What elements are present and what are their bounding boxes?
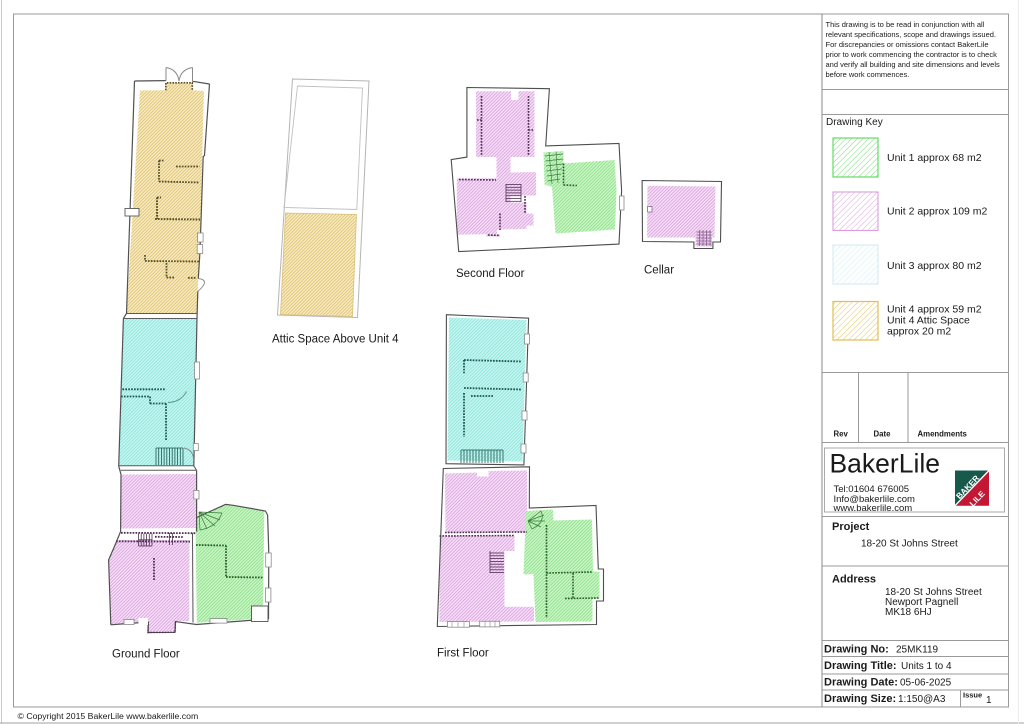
- svg-text:This drawing is to be read in: This drawing is to be read in conjunctio…: [826, 20, 985, 29]
- svg-text:Drawing No:: Drawing No:: [824, 644, 889, 656]
- svg-text:05-06-2025: 05-06-2025: [900, 678, 952, 689]
- svg-text:25MK119: 25MK119: [896, 645, 939, 656]
- svg-text:and verify all building and si: and verify all building and site dimensi…: [826, 60, 1001, 69]
- svg-text:Address: Address: [832, 574, 876, 586]
- svg-text:Attic Space Above Unit 4: Attic Space Above Unit 4: [272, 334, 399, 346]
- svg-text:MK18 6HJ: MK18 6HJ: [885, 607, 932, 618]
- svg-text:First Floor: First Floor: [437, 648, 489, 660]
- svg-text:Date: Date: [874, 430, 892, 439]
- svg-text:Rev: Rev: [834, 430, 849, 439]
- svg-text:BakerLile: BakerLile: [830, 449, 940, 479]
- svg-text:approx 20 m2: approx 20 m2: [887, 326, 951, 338]
- svg-text:18-20 St Johns Street: 18-20 St Johns Street: [861, 539, 958, 550]
- svg-text:© Copyright 2015 BakerLile ww: © Copyright 2015 BakerLile www.bakerlile…: [18, 711, 199, 721]
- svg-text:Unit 2 approx 109 m2: Unit 2 approx 109 m2: [887, 206, 988, 218]
- svg-text:Project: Project: [832, 521, 870, 533]
- svg-text:1: 1: [986, 695, 992, 706]
- svg-text:1:150@A3: 1:150@A3: [898, 694, 946, 705]
- svg-text:Ground Floor: Ground Floor: [112, 649, 180, 661]
- svg-text:For discrepancies or omissions: For discrepancies or omissions contact B…: [826, 40, 989, 49]
- svg-text:Issue: Issue: [963, 691, 982, 700]
- svg-text:Amendments: Amendments: [918, 430, 968, 439]
- svg-text:Units 1 to 4: Units 1 to 4: [901, 661, 952, 672]
- svg-text:Unit 3 approx 80 m2: Unit 3 approx 80 m2: [887, 260, 982, 272]
- svg-text:Cellar: Cellar: [644, 265, 674, 277]
- svg-text:Drawing Key: Drawing Key: [826, 117, 883, 128]
- svg-text:relevant specifications, scope: relevant specifications, scope and drawi…: [826, 30, 997, 39]
- svg-text:www.bakerlile.com: www.bakerlile.com: [833, 503, 913, 514]
- svg-text:before work commences.: before work commences.: [826, 70, 910, 79]
- svg-text:Second Floor: Second Floor: [456, 268, 525, 280]
- svg-text:Drawing Title:: Drawing Title:: [824, 660, 897, 672]
- svg-text:prior to work commencing the c: prior to work commencing the contractor …: [826, 50, 998, 59]
- svg-text:Drawing Date:: Drawing Date:: [824, 677, 898, 689]
- svg-text:Unit 1 approx 68 m2: Unit 1 approx 68 m2: [887, 152, 982, 164]
- svg-text:Drawing Size:: Drawing Size:: [824, 693, 896, 705]
